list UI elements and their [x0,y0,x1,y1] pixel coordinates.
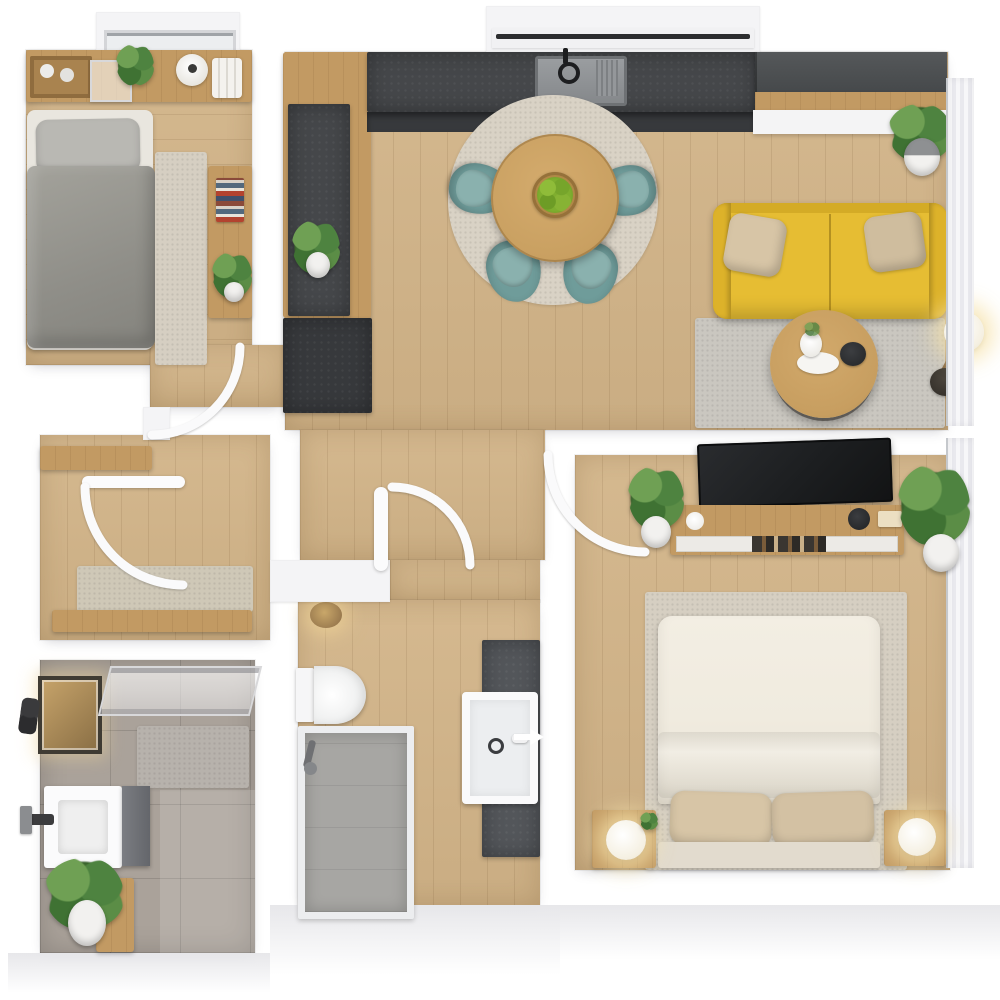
coffee-table-plate [797,352,839,374]
kitchen-cabinet-counter-inset [288,104,350,316]
hall-door-gap-floor [390,560,540,602]
bathroom-light-tiles [160,790,255,953]
shelf-cup-box [30,56,92,98]
floor-plan [0,0,1000,1000]
sofa-seat-split [829,214,831,314]
entry-door-leaf [82,476,185,488]
wall-shadow-master [560,905,1000,960]
faucet-stem [563,48,568,64]
bathroom-sink-basin [58,800,108,854]
sofa-cushion-right [862,210,927,274]
wall-shadow-bathroom [8,953,270,993]
sofa-cushion-left [721,211,788,278]
shelf-plant [116,44,154,86]
sink-drainboard [596,60,618,96]
stacked-books [216,178,244,222]
wall-stub-bedroom-door [143,407,170,440]
entry-bench [52,610,252,632]
bathroom-window [38,676,102,754]
master-plant-left-pot [641,516,671,548]
master-bed-fold [658,732,880,798]
tv [697,438,893,509]
wc-shower [298,726,414,919]
console-speaker [848,508,870,530]
wall-wc-top [270,560,390,602]
living-plant-pot [904,138,940,176]
vase-sprig [804,322,820,336]
master-pillow-left [669,790,773,848]
drain-icon [488,738,504,754]
shelf-cups [40,64,54,78]
bathroom-cabinet [122,786,150,866]
coffee-table-bowl [840,342,866,366]
bedside-rug [155,152,207,365]
kitchen-plant-pot [306,252,330,278]
faucet-icon [558,62,580,84]
shelf-books [212,58,242,98]
wc-ceiling-light [310,602,342,628]
entry-door-mat [77,566,253,612]
single-bed-duvet [27,166,155,348]
bathroom-plant-pot [68,900,106,946]
wc-door-leaf [374,487,388,571]
master-bed-base [658,842,880,868]
bathroom-shower-mat [137,726,249,788]
bathroom-wall-lamp [18,697,41,735]
tv-console-media-shelf [752,536,826,552]
living-upper-cabinets [755,52,947,92]
sofa-armrest-right [929,203,947,319]
nightstand-right-lamp [898,818,936,856]
bathroom-shower-screen [98,666,262,716]
toilet-tank [296,668,314,722]
master-plant-right [898,464,970,546]
shower-head [304,762,317,775]
bedside-plant-pot [224,282,244,302]
green-apples [537,177,573,213]
nightstand-plant [640,812,658,830]
kitchen-window-rail [496,34,750,39]
living-window-band [946,78,974,426]
console-vase [686,512,704,530]
shelf-vase-mouth [188,64,197,73]
nightstand-left-lamp [606,820,646,860]
master-plant-right-pot [923,534,959,572]
bathroom-faucet-mount [20,806,32,834]
entry-wall-shelf [40,446,152,470]
hall-south-floor [300,430,545,560]
master-pillow-right [771,790,875,848]
kitchen-base-cabinet [283,318,372,413]
